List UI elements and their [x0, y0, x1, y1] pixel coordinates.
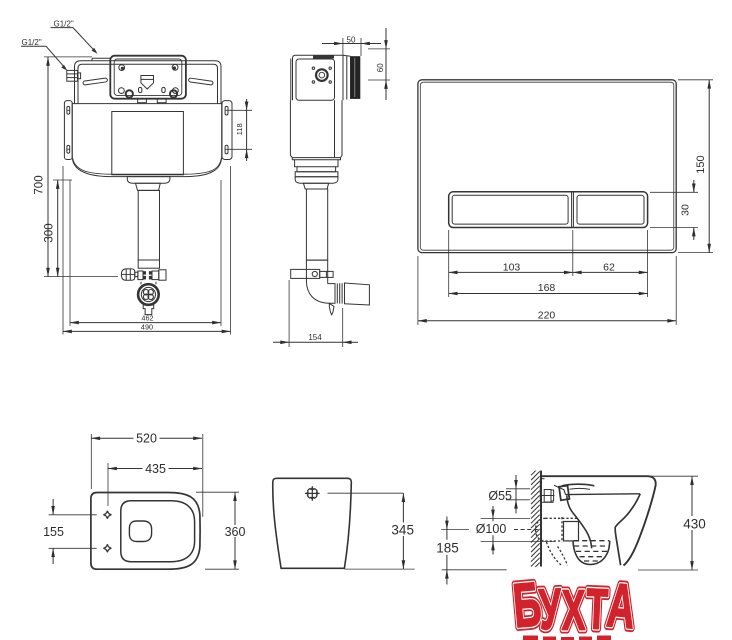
svg-text:154: 154 — [308, 333, 322, 342]
svg-text:520: 520 — [136, 432, 157, 446]
svg-text:Ø55: Ø55 — [488, 489, 512, 503]
svg-text:60: 60 — [376, 63, 385, 72]
svg-text:435: 435 — [145, 462, 166, 476]
svg-text:155: 155 — [43, 525, 64, 539]
svg-text:Х: Х — [562, 579, 586, 640]
svg-text:300: 300 — [44, 223, 56, 242]
svg-text:G1/2": G1/2" — [54, 20, 74, 29]
svg-text:185: 185 — [436, 541, 459, 556]
svg-text:118: 118 — [235, 123, 244, 135]
svg-text:У: У — [538, 578, 563, 640]
svg-text:А: А — [605, 570, 639, 640]
svg-text:462: 462 — [141, 314, 153, 323]
svg-text:490: 490 — [141, 323, 153, 332]
svg-text:30: 30 — [680, 204, 692, 216]
svg-text:62: 62 — [603, 262, 615, 274]
svg-text:168: 168 — [538, 282, 556, 294]
svg-text:Ø100: Ø100 — [476, 522, 507, 536]
svg-text:G1/2": G1/2" — [22, 38, 42, 47]
svg-text:360: 360 — [225, 525, 246, 539]
svg-text:430: 430 — [683, 517, 706, 532]
svg-text:345: 345 — [391, 523, 414, 538]
svg-text:150: 150 — [695, 155, 707, 173]
svg-text:50: 50 — [347, 36, 356, 45]
svg-text:103: 103 — [503, 262, 521, 274]
svg-text:220: 220 — [538, 310, 556, 322]
svg-text:700: 700 — [34, 175, 46, 194]
